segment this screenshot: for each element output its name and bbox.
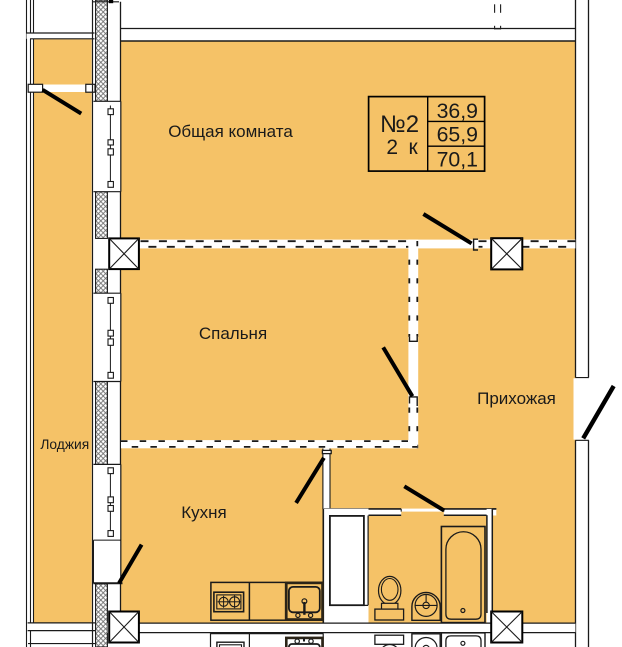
svg-text:2 к: 2 к xyxy=(386,136,418,159)
svg-text:Лоджия: Лоджия xyxy=(40,437,89,452)
svg-text:Спальня: Спальня xyxy=(199,324,267,343)
svg-text:36,9: 36,9 xyxy=(437,99,478,123)
svg-text:Прихожая: Прихожая xyxy=(477,389,556,408)
svg-text:65,9: 65,9 xyxy=(437,123,478,147)
svg-text:Общая комната: Общая комната xyxy=(168,122,293,141)
svg-text:70,1: 70,1 xyxy=(437,148,478,172)
svg-text:№2: №2 xyxy=(380,111,419,138)
svg-text:Кухня: Кухня xyxy=(181,503,227,522)
